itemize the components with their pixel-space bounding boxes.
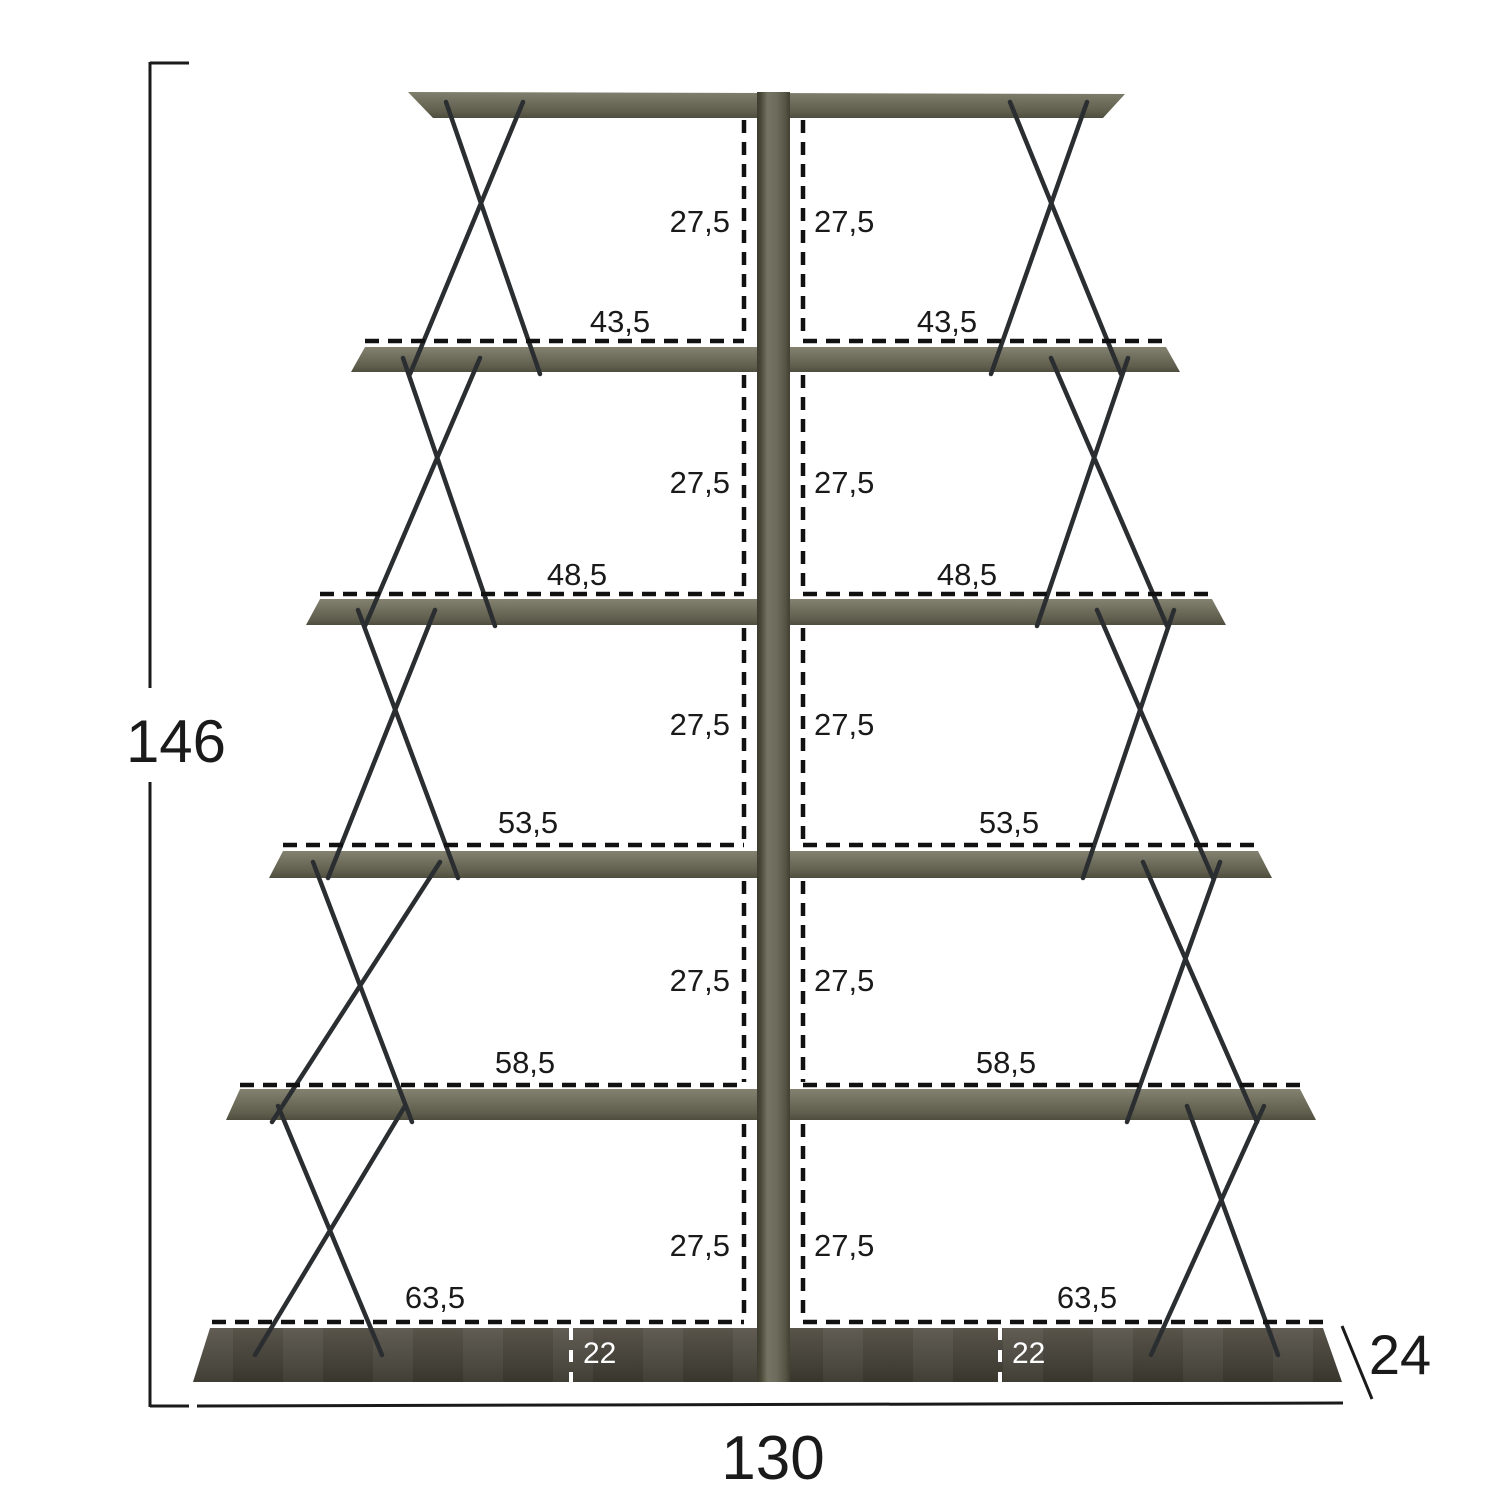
overall-height-label: 146 — [86, 707, 266, 777]
shelf-width-label: 48,5 — [887, 556, 1047, 594]
wire — [1097, 610, 1213, 878]
wire — [1143, 862, 1257, 1122]
shelf-width-label: 53,5 — [929, 804, 1089, 842]
overall-width-label: 130 — [683, 1424, 863, 1494]
gap-height-label: 27,5 — [610, 203, 730, 241]
shelf-width-label: 58,5 — [445, 1044, 605, 1082]
gap-height-label: 27,5 — [610, 1227, 730, 1265]
shelf-width-label: 53,5 — [448, 804, 608, 842]
wire — [365, 358, 480, 626]
shelf-width-label: 48,5 — [497, 556, 657, 594]
wire — [403, 358, 495, 626]
gap-height-label: 27,5 — [610, 464, 730, 502]
wire — [272, 862, 440, 1122]
wire — [1083, 610, 1174, 878]
wire — [358, 610, 458, 878]
gap-height-label: 27,5 — [814, 1227, 934, 1265]
gap-height-label: 27,5 — [814, 962, 934, 1000]
shelf-width-label: 63,5 — [1007, 1279, 1167, 1317]
gap-height-label: 27,5 — [814, 464, 934, 502]
base-offset-label: 22 — [1012, 1335, 1092, 1373]
center-column — [757, 92, 790, 1382]
gap-height-label: 27,5 — [610, 962, 730, 1000]
wire — [1037, 358, 1128, 626]
shelf-width-label: 58,5 — [926, 1044, 1086, 1082]
wire — [446, 102, 540, 374]
overall-depth-label: 24 — [1330, 1324, 1470, 1386]
gap-height-label: 27,5 — [814, 203, 934, 241]
shelf-width-label: 43,5 — [540, 303, 700, 341]
wire — [410, 102, 523, 374]
bookshelf-dimension-diagram: 146 130 24 27,5 27,5 27,5 27,5 27,5 27,5… — [0, 0, 1499, 1500]
shelf-width-label: 63,5 — [355, 1279, 515, 1317]
width-dimension-line — [197, 1403, 1343, 1406]
wire — [1127, 862, 1220, 1122]
wire — [1187, 1106, 1278, 1355]
wire — [328, 610, 435, 878]
wire — [1151, 1106, 1264, 1355]
wire — [255, 1106, 405, 1355]
gap-height-label: 27,5 — [610, 706, 730, 744]
base-offset-label: 22 — [583, 1335, 663, 1373]
wire — [1051, 358, 1167, 626]
wire — [278, 1106, 382, 1355]
shelf-width-label: 43,5 — [867, 303, 1027, 341]
gap-height-label: 27,5 — [814, 706, 934, 744]
wire — [313, 862, 412, 1122]
